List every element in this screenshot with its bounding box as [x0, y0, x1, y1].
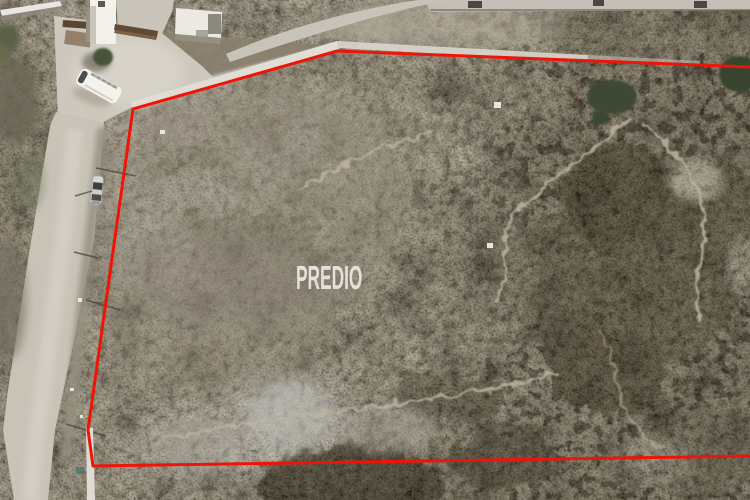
svg-text:PREDIO: PREDIO [296, 259, 362, 297]
